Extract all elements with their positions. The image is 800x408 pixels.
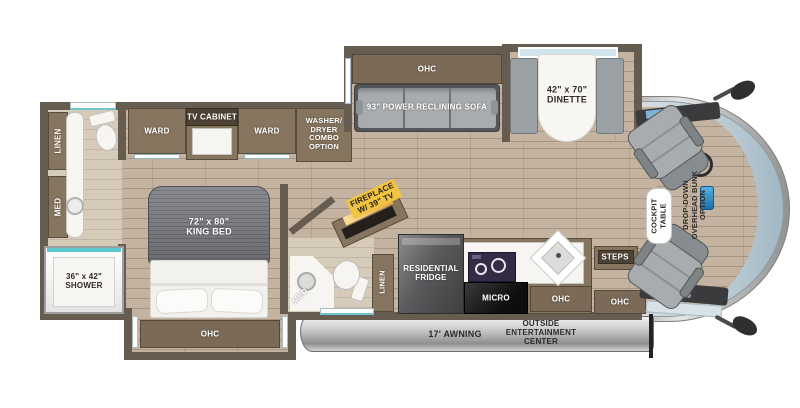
label-sofa: 93" POWER RECLINING SOFA (367, 102, 487, 111)
bed-slide-window-left (132, 316, 138, 348)
cooktop-controls (472, 255, 481, 259)
ward-left-slit (134, 154, 180, 159)
sofa-slide-wall-top (344, 46, 510, 54)
rear-vanity (66, 112, 84, 238)
dinette-bench-right (596, 58, 624, 134)
dinette-wall-left (502, 44, 510, 142)
rear-bath-sink (66, 197, 84, 215)
sofa-armrest-right (491, 100, 498, 115)
side-mirror-top (728, 78, 758, 103)
label-kitchen-ohc: OHC (552, 294, 570, 303)
label-king-bed: 72" x 80" KING BED (186, 217, 232, 238)
label-linen-rear: LINEN (53, 129, 62, 154)
label-washer-dryer: WASHER/ DRYER COMBO OPTION (306, 117, 342, 152)
label-bed-ohc: OHC (201, 329, 219, 338)
label-cockpit-table: COCKPIT TABLE (650, 198, 667, 233)
label-ward-left: WARD (144, 126, 169, 135)
label-entry-ohc: OHC (611, 297, 629, 306)
dinette-bench-left (510, 58, 538, 134)
rv-floorplan: LINEN MED 36" x 42" SHOWER WARD TV CABIN… (0, 0, 800, 408)
cooktop-burner-large (491, 258, 506, 273)
cooktop-burner-small (475, 263, 487, 275)
label-overhead-bunk: DROP-DOWN OVERHEAD BUNK OPTION (682, 171, 708, 240)
label-shower: 36" x 42" SHOWER (65, 272, 102, 290)
ward-right-slit (244, 154, 290, 159)
label-linen-mid: LINEN (379, 270, 388, 294)
bed-pillow-left (155, 288, 208, 315)
label-fridge: RESIDENTIAL FRIDGE (403, 264, 459, 282)
label-awning: 17' AWNING (428, 329, 481, 339)
side-mirror-bottom (730, 314, 760, 339)
bed-slide-window-right (282, 316, 288, 348)
label-med-rear: MED (53, 198, 62, 216)
kitchen-faucet (556, 253, 561, 258)
sofa-slide-window-left (345, 58, 351, 104)
awning-end-cap (649, 314, 653, 358)
mid-wall-vertical (280, 184, 288, 314)
label-outside-entertainment: OUTSIDE ENTERTAINMENT CENTER (506, 319, 576, 347)
mid-bath-window (320, 308, 374, 315)
rear-bath-window (70, 102, 116, 110)
label-micro: MICRO (482, 293, 510, 302)
sofa-armrest-left (356, 100, 363, 115)
shower-glass (47, 248, 121, 252)
tv-screen (192, 128, 232, 155)
label-tv-cabinet: TV CABINET (187, 112, 237, 121)
label-steps: STEPS (601, 252, 628, 261)
bed-slide-wall-bottom (124, 352, 296, 360)
bed-fold-line (151, 283, 267, 286)
fridge-top-highlight (402, 238, 460, 245)
bed-pillow-right (210, 288, 263, 315)
label-ward-right: WARD (254, 126, 279, 135)
label-sofa-ohc: OHC (418, 64, 436, 73)
label-dinette: 42" x 70" DINETTE (547, 85, 587, 106)
